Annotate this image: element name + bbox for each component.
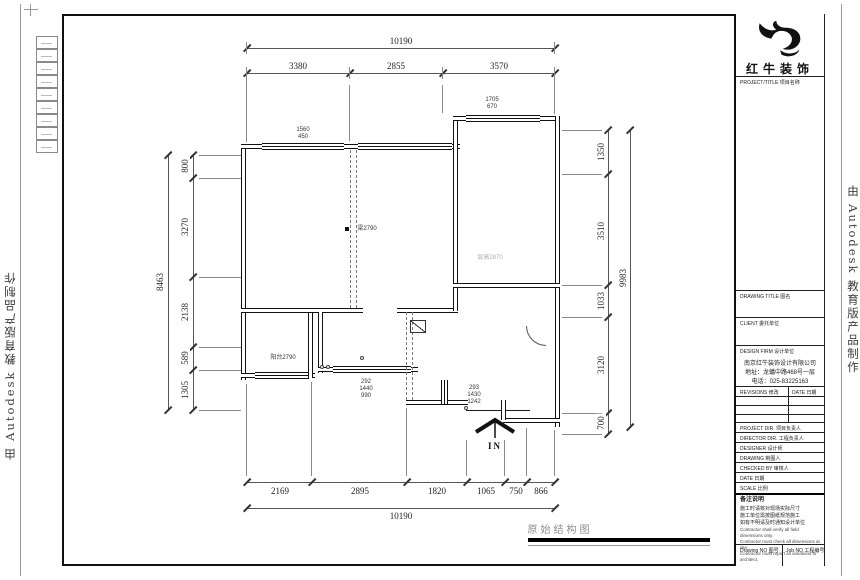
window-size-label: 1560 450 [296,127,309,141]
personnel-row: DRAWING 制图人 [740,455,780,462]
drawing-no-label: Drawing NO 图号 [740,547,779,554]
extension-line [562,434,602,435]
extension-line [554,79,555,114]
title-block-line [736,493,824,495]
personnel-row: DESIGNER 设计师 [740,445,783,452]
title-block-line [736,76,824,77]
dim-line [247,48,555,49]
crop-mark [30,4,31,16]
firm-name: 南京红牛装饰设计有限公司 [736,358,824,367]
dim-value: 2895 [349,486,371,496]
personnel-row: DATE 日期 [740,475,764,482]
revision-strip-cell [36,75,58,88]
title-block-line [736,462,824,463]
dim-value: 3120 [596,354,606,376]
fixture-circle [320,365,324,369]
extension-line [199,155,241,156]
extension-line [562,130,602,131]
dim-value: 10190 [388,36,415,46]
revision-strip-cell [36,140,58,153]
extension-line [199,410,241,411]
extension-line [442,85,443,113]
title-block-line [736,422,824,423]
revision-strip-cell [36,36,58,49]
revisions-table-divider [788,386,789,422]
autodesk-watermark-left: 由 Autodesk 教育版产品制作 [2,150,18,460]
caption-underline-thin [528,545,710,546]
title-block-divider [824,14,825,566]
title-block-line [736,414,824,415]
beam-marker [345,227,349,231]
personnel-row: SCALE 比例 [740,485,768,492]
dim-value: 589 [180,349,190,367]
margin-line-right [841,4,842,576]
client-label: CLIENT 委托单位 [740,320,779,327]
design-firm-label: DESIGN FIRM 设计单位 [740,348,794,355]
notes-en: Contractor shall verify all field dimens… [740,527,822,563]
extension-line [246,384,247,476]
dim-stack: 293 1430 1242 [467,385,480,406]
autodesk-watermark-right: 由 Autodesk 教育版产品制作 [845,185,860,495]
title-block-line [736,290,824,291]
revision-strip-cell [36,101,58,114]
entry-arrow-icon [472,414,518,440]
dim-value: 750 [507,486,525,496]
window-size-label: 1705 670 [485,97,498,111]
extension-line [199,277,241,278]
wall-segment [241,144,246,380]
dim-value: 2169 [269,486,291,496]
margin-line-left [20,4,21,576]
wall-segment [241,308,363,313]
dim-value: 10190 [388,511,415,521]
dim-stack: 292 1440 990 [359,379,372,400]
dim-value: 1033 [596,290,606,312]
notes-title: 备注说明 [740,497,822,504]
column-symbol [410,320,426,333]
dim-line [247,73,555,74]
title-block-divider [782,544,783,566]
window-symbol [441,380,448,404]
dim-value: 1350 [596,141,606,163]
extension-line [466,440,467,476]
date-col-label: DATE 日期 [792,389,816,396]
personnel-row: DIRECTOR DIR. 工程负责人 [740,435,804,442]
revision-strip-cell [36,62,58,75]
sheet-border [62,14,838,566]
entry-label: IN [488,441,502,451]
dim-value: 2138 [180,301,190,323]
extension-line [199,178,241,179]
revision-strip-cell [36,127,58,140]
title-block-line [736,317,824,318]
floor-height-label: 层高2870 [477,255,502,262]
extension-line [504,440,505,476]
drawing-caption: 原始结构图 [528,521,593,536]
wall-segment [318,312,323,373]
dim-line [630,130,631,427]
revisions-label: REVISIONS 修改 [740,389,779,396]
title-block-line [736,405,824,406]
dim-value: 3380 [287,61,309,71]
title-block-line [736,432,824,433]
title-block-line [736,472,824,473]
dim-value: 3570 [488,61,510,71]
wall-segment [453,283,560,288]
dim-value: 8463 [155,271,165,293]
firm-phone: 电话：025-83225163 [736,376,824,385]
dim-value: 2855 [385,61,407,71]
threshold-line [466,410,530,411]
extension-line [562,285,602,286]
red-bull-logo-icon [752,19,816,57]
project-title-label: PROJECT/TITLE 项目名称 [740,79,800,86]
wall-segment [406,400,468,405]
revision-strip-cell [36,114,58,127]
job-no-label: Job NO 工程编号 [786,547,824,554]
title-block: 红牛装饰 PROJECT/TITLE 项目名称 DRAWING TITLE 图名… [734,14,838,566]
window-symbol [466,115,540,122]
wall-segment [308,310,313,378]
fixture-circle [326,365,330,369]
dim-value: 3510 [596,220,606,242]
title-block-line [736,386,824,387]
title-block-line [736,482,824,483]
extension-line [562,317,602,318]
extension-line [349,67,350,79]
dim-line [168,155,169,410]
dim-value: 1820 [426,486,448,496]
extension-line [554,430,555,476]
dim-line [247,508,555,509]
window-symbol [333,366,411,373]
extension-line [199,347,241,348]
extension-line [349,85,350,141]
firm-address: 地址：龙蟠中路468号一层 [736,367,824,376]
dim-value: 9983 [618,267,628,289]
dim-line [247,482,555,483]
title-block-line [736,396,824,397]
crop-mark [24,9,38,10]
extension-line [246,79,247,142]
extension-line [442,67,443,79]
extension-line [246,67,247,79]
wall-segment [453,116,458,150]
dim-value: 1305 [180,379,190,401]
personnel-row: PROJECT DIR. 项目负责人 [740,425,801,432]
revision-strip-cell [36,88,58,101]
fixture-circle [464,406,468,410]
dim-value: 800 [180,157,190,175]
dim-value: 866 [532,486,550,496]
caption-underline-bar [528,538,710,542]
dim-value: 1065 [475,486,497,496]
dim-value: 700 [596,414,606,432]
extension-line [199,370,241,371]
window-symbol [358,143,452,150]
balcony-label: 阳台2790 [270,355,295,362]
window-symbol [262,143,344,150]
wall-segment [555,116,560,427]
personnel-row: CHECKED BY 审核人 [740,465,789,472]
company-brand-name: 红牛装饰 [736,60,824,77]
dim-value: 3270 [180,216,190,238]
title-block-line [736,442,824,443]
notes-cn: 施工时请核对现场实际尺寸 施工单位需按图纸规范施工 如有不明请及时通知设计单位 [740,506,822,527]
dim-line [193,155,194,410]
extension-line [554,67,555,79]
fixture-circle [360,356,364,360]
window-symbol [255,372,309,379]
extension-line [311,382,312,476]
extension-line [562,174,602,175]
extension-line [406,408,407,476]
extension-line [554,42,555,54]
beam-dashed-line [350,150,357,308]
title-block-line [736,452,824,453]
revision-strip-cell [36,49,58,62]
title-block-line [736,345,824,346]
drawing-title-label: DRAWING TITLE 图名 [740,293,790,300]
extension-line [246,42,247,54]
beam-label: 梁2790 [357,226,376,233]
title-block-line [736,544,824,545]
extension-line [526,428,527,476]
